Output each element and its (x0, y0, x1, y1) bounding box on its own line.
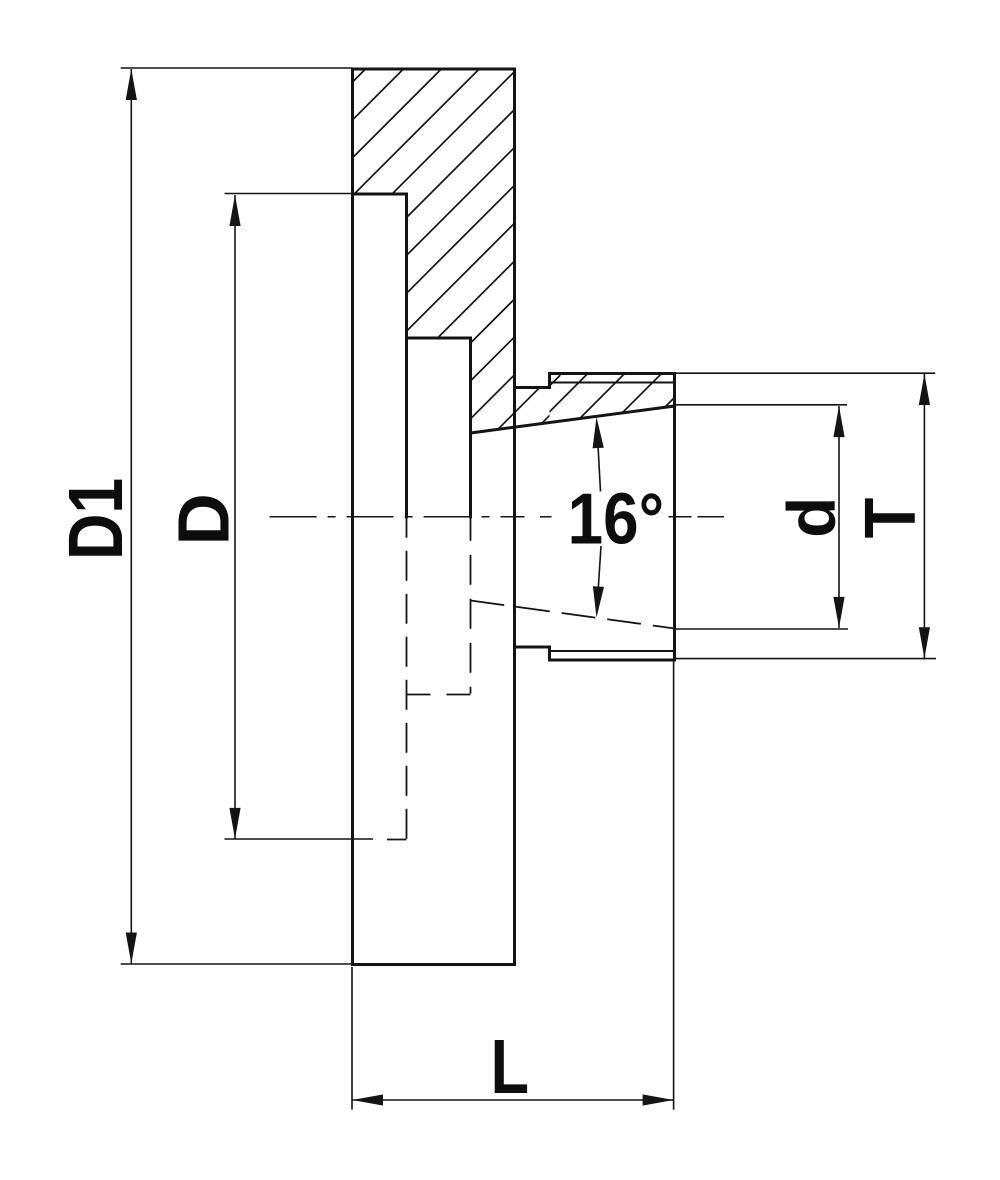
svg-text:d: d (774, 497, 849, 538)
svg-text:16°: 16° (568, 479, 664, 560)
svg-text:D1: D1 (54, 478, 140, 560)
svg-text:L: L (490, 1023, 529, 1109)
svg-text:D: D (164, 493, 245, 545)
svg-text:T: T (849, 498, 930, 539)
